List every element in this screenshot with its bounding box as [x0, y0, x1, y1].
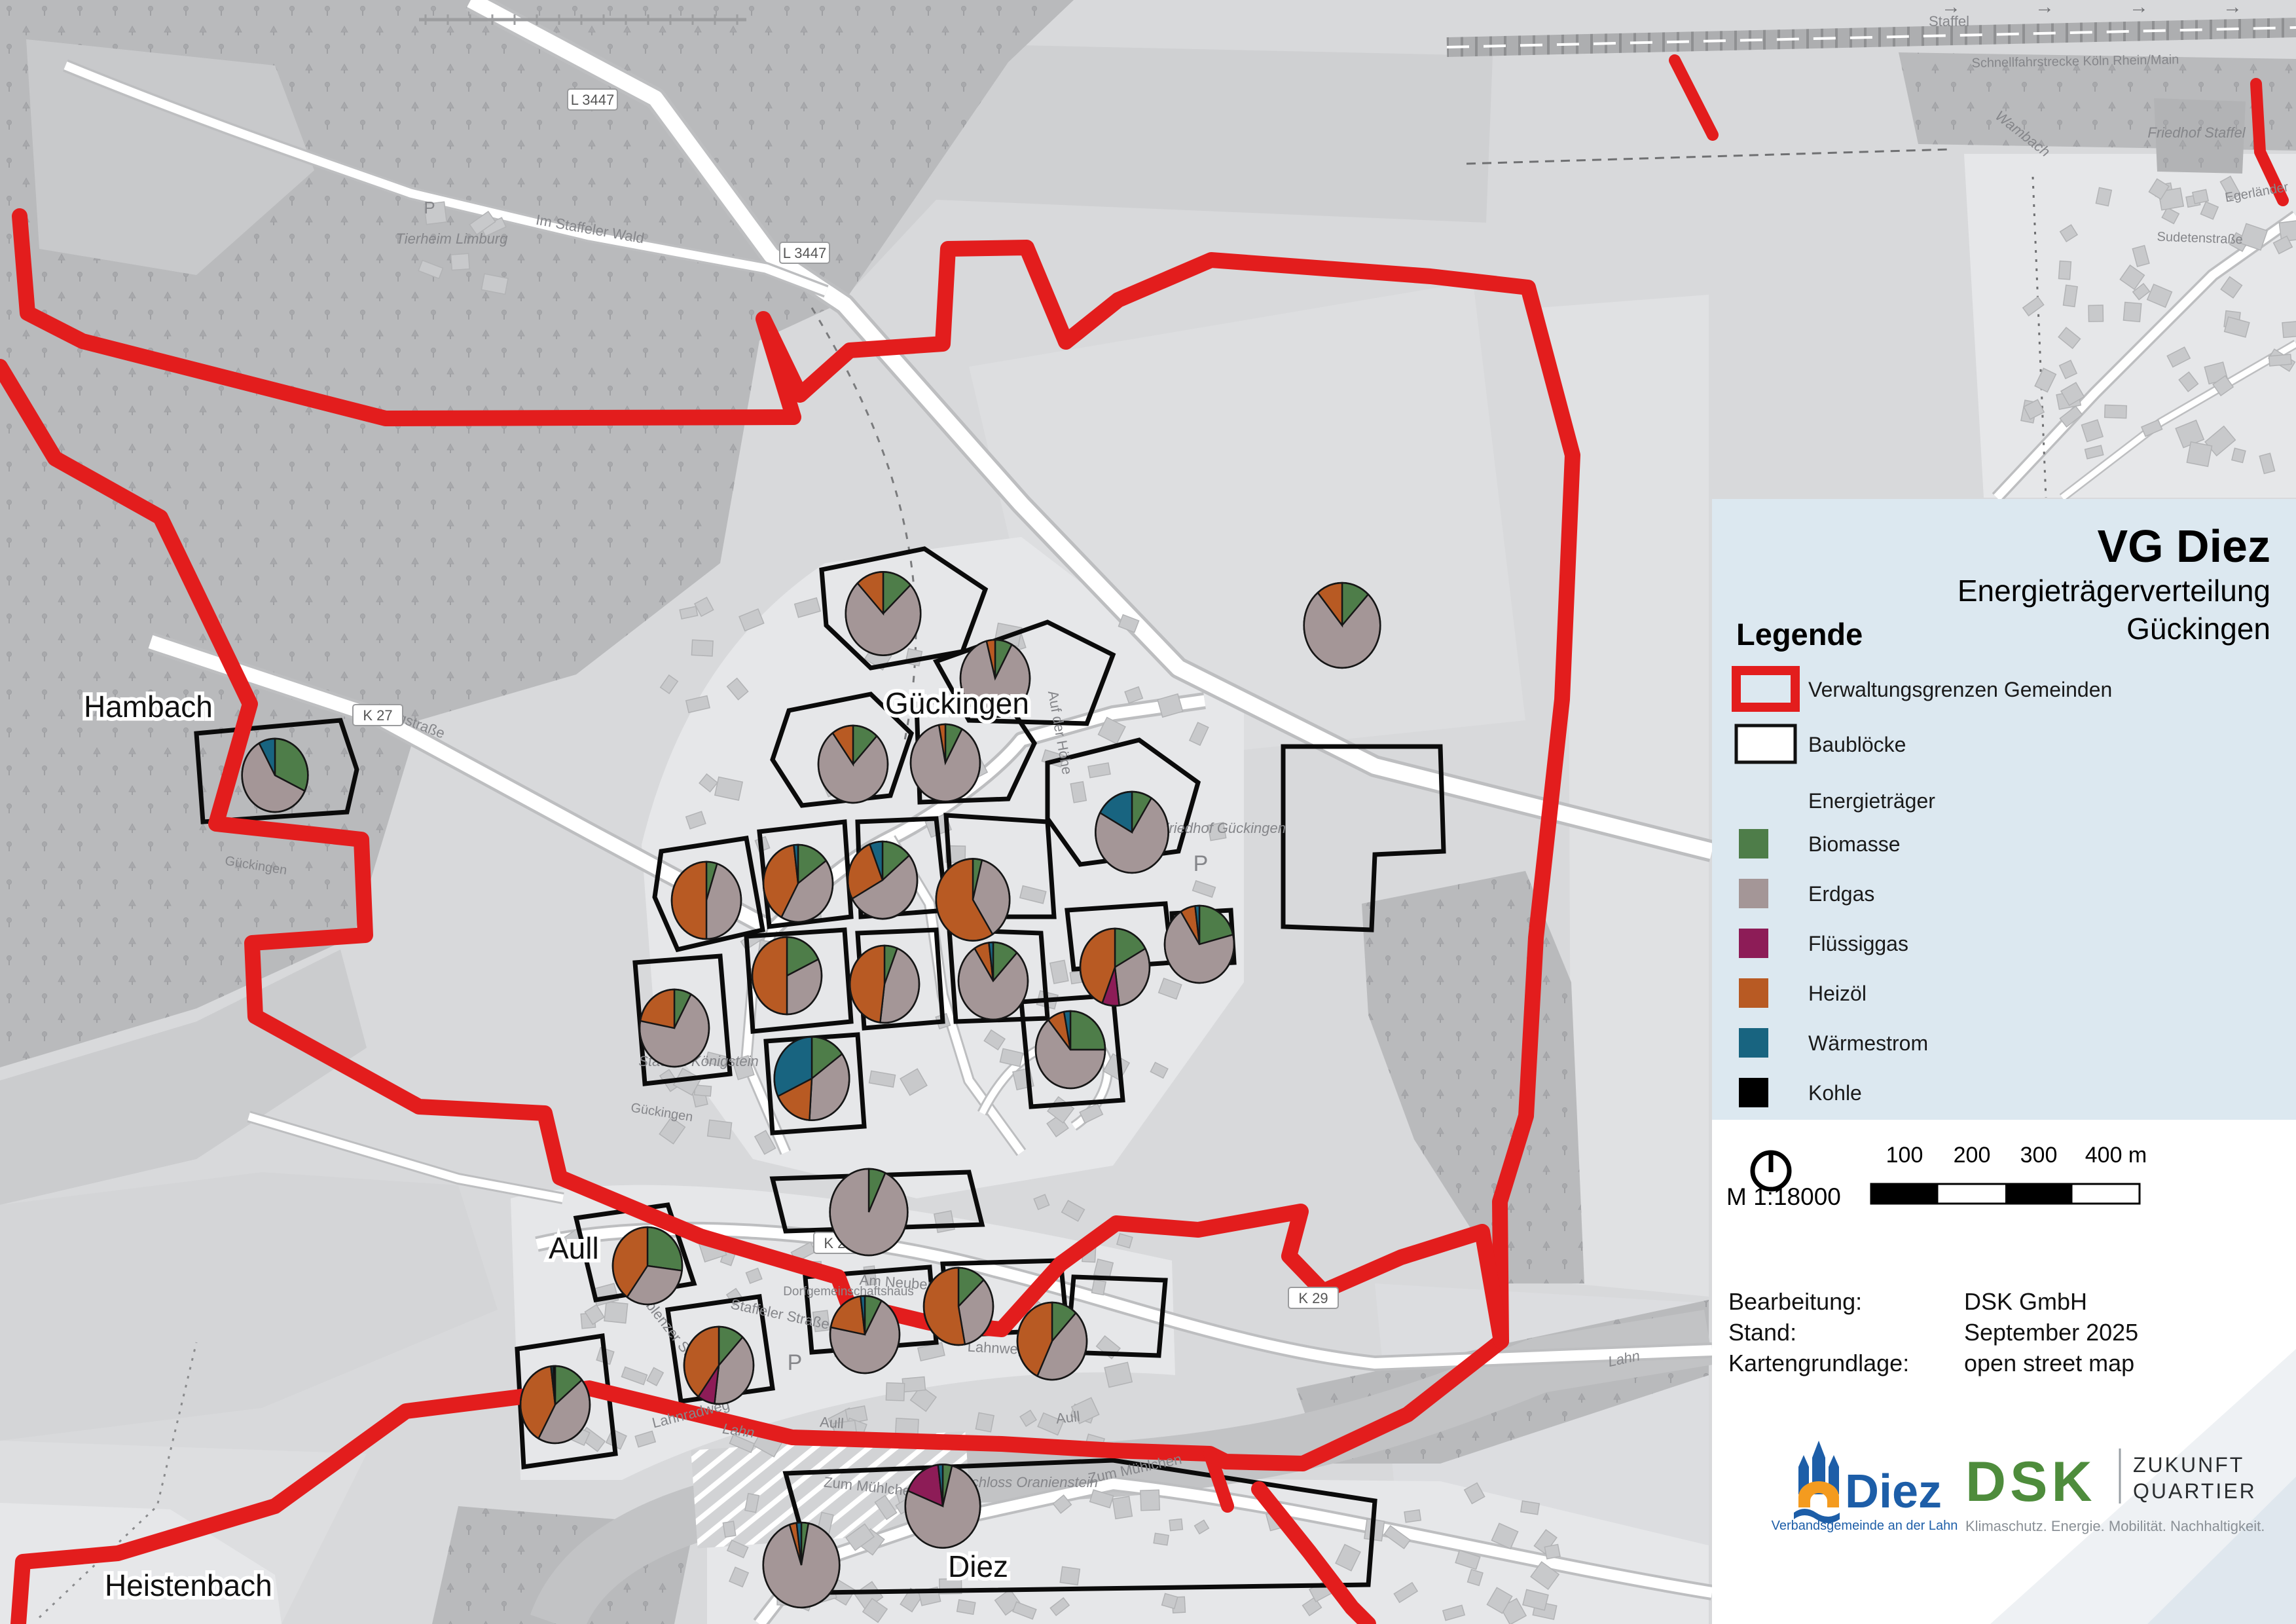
scale-tick-200: 200 — [1954, 1143, 1991, 1168]
pie-chart-27 — [763, 1522, 840, 1608]
building — [2059, 261, 2071, 280]
pie-chart-14 — [640, 989, 709, 1067]
street-label: Aull — [819, 1414, 844, 1431]
rail-direction-arrow: → — [2223, 0, 2242, 18]
pie-chart-13 — [958, 942, 1028, 1020]
energy-heading: Energieträger — [1808, 789, 1935, 813]
pie-chart-21 — [684, 1327, 754, 1404]
place-label-hambach: Hambach — [84, 690, 213, 724]
fluessiggas-label: Flüssiggas — [1808, 932, 1908, 955]
diez-logo-text: Diez — [1845, 1466, 1942, 1518]
attr-label-stand: Stand: — [1728, 1319, 1796, 1346]
scale-tick-400: 400 m — [2085, 1143, 2147, 1168]
building — [2064, 285, 2078, 306]
street-label: Dorfgemeinschaftshaus — [783, 1285, 914, 1299]
building — [2123, 303, 2141, 322]
erdgas-label: Erdgas — [1808, 882, 1874, 906]
road-badge: L 3447 — [780, 242, 829, 263]
street-label: Friedhof Staffel — [2147, 124, 2246, 141]
street-label: Tierheim Limburg — [396, 231, 509, 247]
pie-chart-24 — [924, 1268, 993, 1345]
building — [691, 640, 713, 656]
building — [957, 1600, 975, 1614]
building — [451, 253, 469, 270]
map-title: VG Diez — [2097, 521, 2270, 572]
place-label-gückingen: Gückingen — [885, 686, 1029, 720]
building — [2193, 189, 2208, 204]
building — [723, 1521, 735, 1537]
pie-chart-15 — [774, 1037, 850, 1120]
street-label: P — [1194, 851, 1209, 876]
pie-chart-23 — [830, 1296, 900, 1373]
pie-chart-22 — [520, 1366, 590, 1443]
pie-chart-25 — [1017, 1302, 1087, 1380]
boundary-legend-label: Verwaltungsgrenzen Gemeinden — [1808, 678, 2112, 701]
scale-bar-segment — [2005, 1184, 2073, 1204]
building — [1092, 1280, 1106, 1295]
building — [1154, 1533, 1169, 1545]
kohle-swatch — [1739, 1078, 1768, 1107]
street-label: Staffel — [1929, 13, 1969, 29]
street-label: Friedhof Gückingen — [1160, 820, 1286, 836]
pie-chart-10 — [936, 858, 1010, 940]
scale-ratio: M 1:18000 — [1726, 1183, 1841, 1210]
blocks-legend-label: Baublöcke — [1808, 733, 1906, 756]
building — [1112, 1496, 1132, 1519]
heizoel-label: Heizöl — [1808, 982, 1867, 1005]
street-label: Schloss Oranienstein — [962, 1474, 1098, 1490]
legend-heading: Legende — [1736, 617, 1863, 652]
street-label: Aull — [1055, 1408, 1081, 1427]
building — [1070, 782, 1086, 803]
map-subtitle: Energieträgerverteilung — [1958, 574, 2270, 608]
waermestrom-label: Wärmestrom — [1808, 1031, 1928, 1055]
pie-chart-5 — [911, 724, 980, 802]
erdgas-swatch — [1739, 879, 1768, 908]
biomasse-label: Biomasse — [1808, 832, 1901, 856]
scale-bar-segment — [1871, 1184, 1939, 1204]
kohle-label: Kohle — [1808, 1081, 1862, 1105]
scale-bar-segment — [1939, 1184, 2006, 1204]
rail-direction-arrow: → — [2035, 0, 2054, 18]
dsk-quartier-text: QUARTIER — [2133, 1479, 2257, 1503]
building — [2232, 448, 2246, 462]
building — [902, 1377, 925, 1392]
scale-panel: 100 200 300 400 m M 1:18000 Bearbeitung:… — [1712, 1120, 2296, 1624]
building — [1169, 1519, 1182, 1531]
building — [1060, 1566, 1080, 1585]
street-label: P — [424, 198, 435, 217]
pie-chart-6 — [1095, 792, 1168, 873]
map-subtitle-place: Gückingen — [2126, 612, 2270, 646]
building — [2269, 354, 2291, 366]
road-badge: K 27 — [353, 705, 403, 726]
attr-value-kartengrundlage: open street map — [1964, 1350, 2134, 1376]
building — [708, 1120, 732, 1139]
building — [2282, 321, 2296, 338]
pie-chart-28 — [242, 739, 308, 812]
building — [886, 1383, 904, 1401]
map-document: →→→→LangstraßeIm Staffeler WaldAuf der H… — [0, 0, 2296, 1624]
scale-tick-300: 300 — [2020, 1143, 2058, 1168]
legend-panel: VG Diez Energieträgerverteilung Gückinge… — [1712, 499, 2296, 1120]
place-label-heistenbach: Heistenbach — [105, 1568, 272, 1602]
pie-chart-3 — [1304, 583, 1381, 668]
rail-direction-arrow: → — [2129, 0, 2149, 18]
place-label-aull: Aull — [549, 1231, 599, 1265]
building — [975, 1412, 994, 1431]
road-badge: L 3447 — [568, 89, 617, 110]
building — [934, 1211, 955, 1232]
dsk-logo-text: DSK — [1965, 1450, 2096, 1513]
road-badge: K 29 — [1288, 1287, 1338, 1308]
heizoel-swatch — [1739, 978, 1768, 1008]
dsk-logo-tagline: Klimaschutz. Energie. Mobilität. Nachhal… — [1965, 1518, 2265, 1534]
place-label-diez: Diez — [948, 1549, 1008, 1583]
attr-value-bearbeitung: DSK GmbH — [1964, 1288, 2087, 1315]
scale-tick-100: 100 — [1886, 1143, 1923, 1168]
pie-chart-18 — [1165, 906, 1234, 983]
pie-chart-7 — [672, 862, 741, 939]
pie-chart-1 — [846, 572, 920, 655]
building — [1404, 1510, 1421, 1522]
building — [2088, 305, 2103, 322]
svg-text:L 3447: L 3447 — [783, 245, 826, 261]
pie-chart-17 — [1080, 929, 1150, 1006]
pie-chart-20 — [613, 1227, 682, 1304]
attr-label-bearbeitung: Bearbeitung: — [1728, 1288, 1862, 1315]
attr-value-stand: September 2025 — [1964, 1319, 2138, 1346]
building — [1140, 1490, 1159, 1510]
pie-chart-8 — [763, 845, 833, 922]
pie-chart-26 — [905, 1464, 980, 1547]
dsk-zukunft-text: ZUKUNFT — [2133, 1453, 2244, 1477]
blocks-legend-swatch — [1736, 726, 1795, 762]
street-label: P — [788, 1350, 803, 1375]
building — [1544, 1545, 1560, 1559]
pie-chart-9 — [848, 841, 917, 919]
pie-chart-19 — [830, 1169, 908, 1255]
pie-chart-16 — [1036, 1011, 1105, 1088]
building — [2187, 442, 2212, 467]
svg-text:K 27: K 27 — [363, 707, 392, 724]
building — [604, 1302, 628, 1323]
svg-text:L 3447: L 3447 — [571, 92, 614, 108]
fluessiggas-swatch — [1739, 929, 1768, 958]
waermestrom-swatch — [1739, 1028, 1768, 1058]
building — [1521, 1501, 1539, 1515]
pie-chart-11 — [752, 937, 822, 1014]
attr-label-kartengrundlage: Kartengrundlage: — [1728, 1350, 1909, 1376]
svg-text:K 29: K 29 — [1298, 1290, 1328, 1306]
pie-chart-4 — [818, 726, 888, 803]
building — [2105, 405, 2127, 418]
diez-logo-tagline: Verbandsgemeinde an der Lahn — [1772, 1519, 1958, 1533]
scale-bar-segment — [2073, 1184, 2140, 1204]
street-label: Sudetenstraße — [2157, 230, 2243, 248]
biomasse-swatch — [1739, 829, 1768, 858]
pie-chart-12 — [850, 946, 919, 1023]
building — [2096, 188, 2111, 206]
